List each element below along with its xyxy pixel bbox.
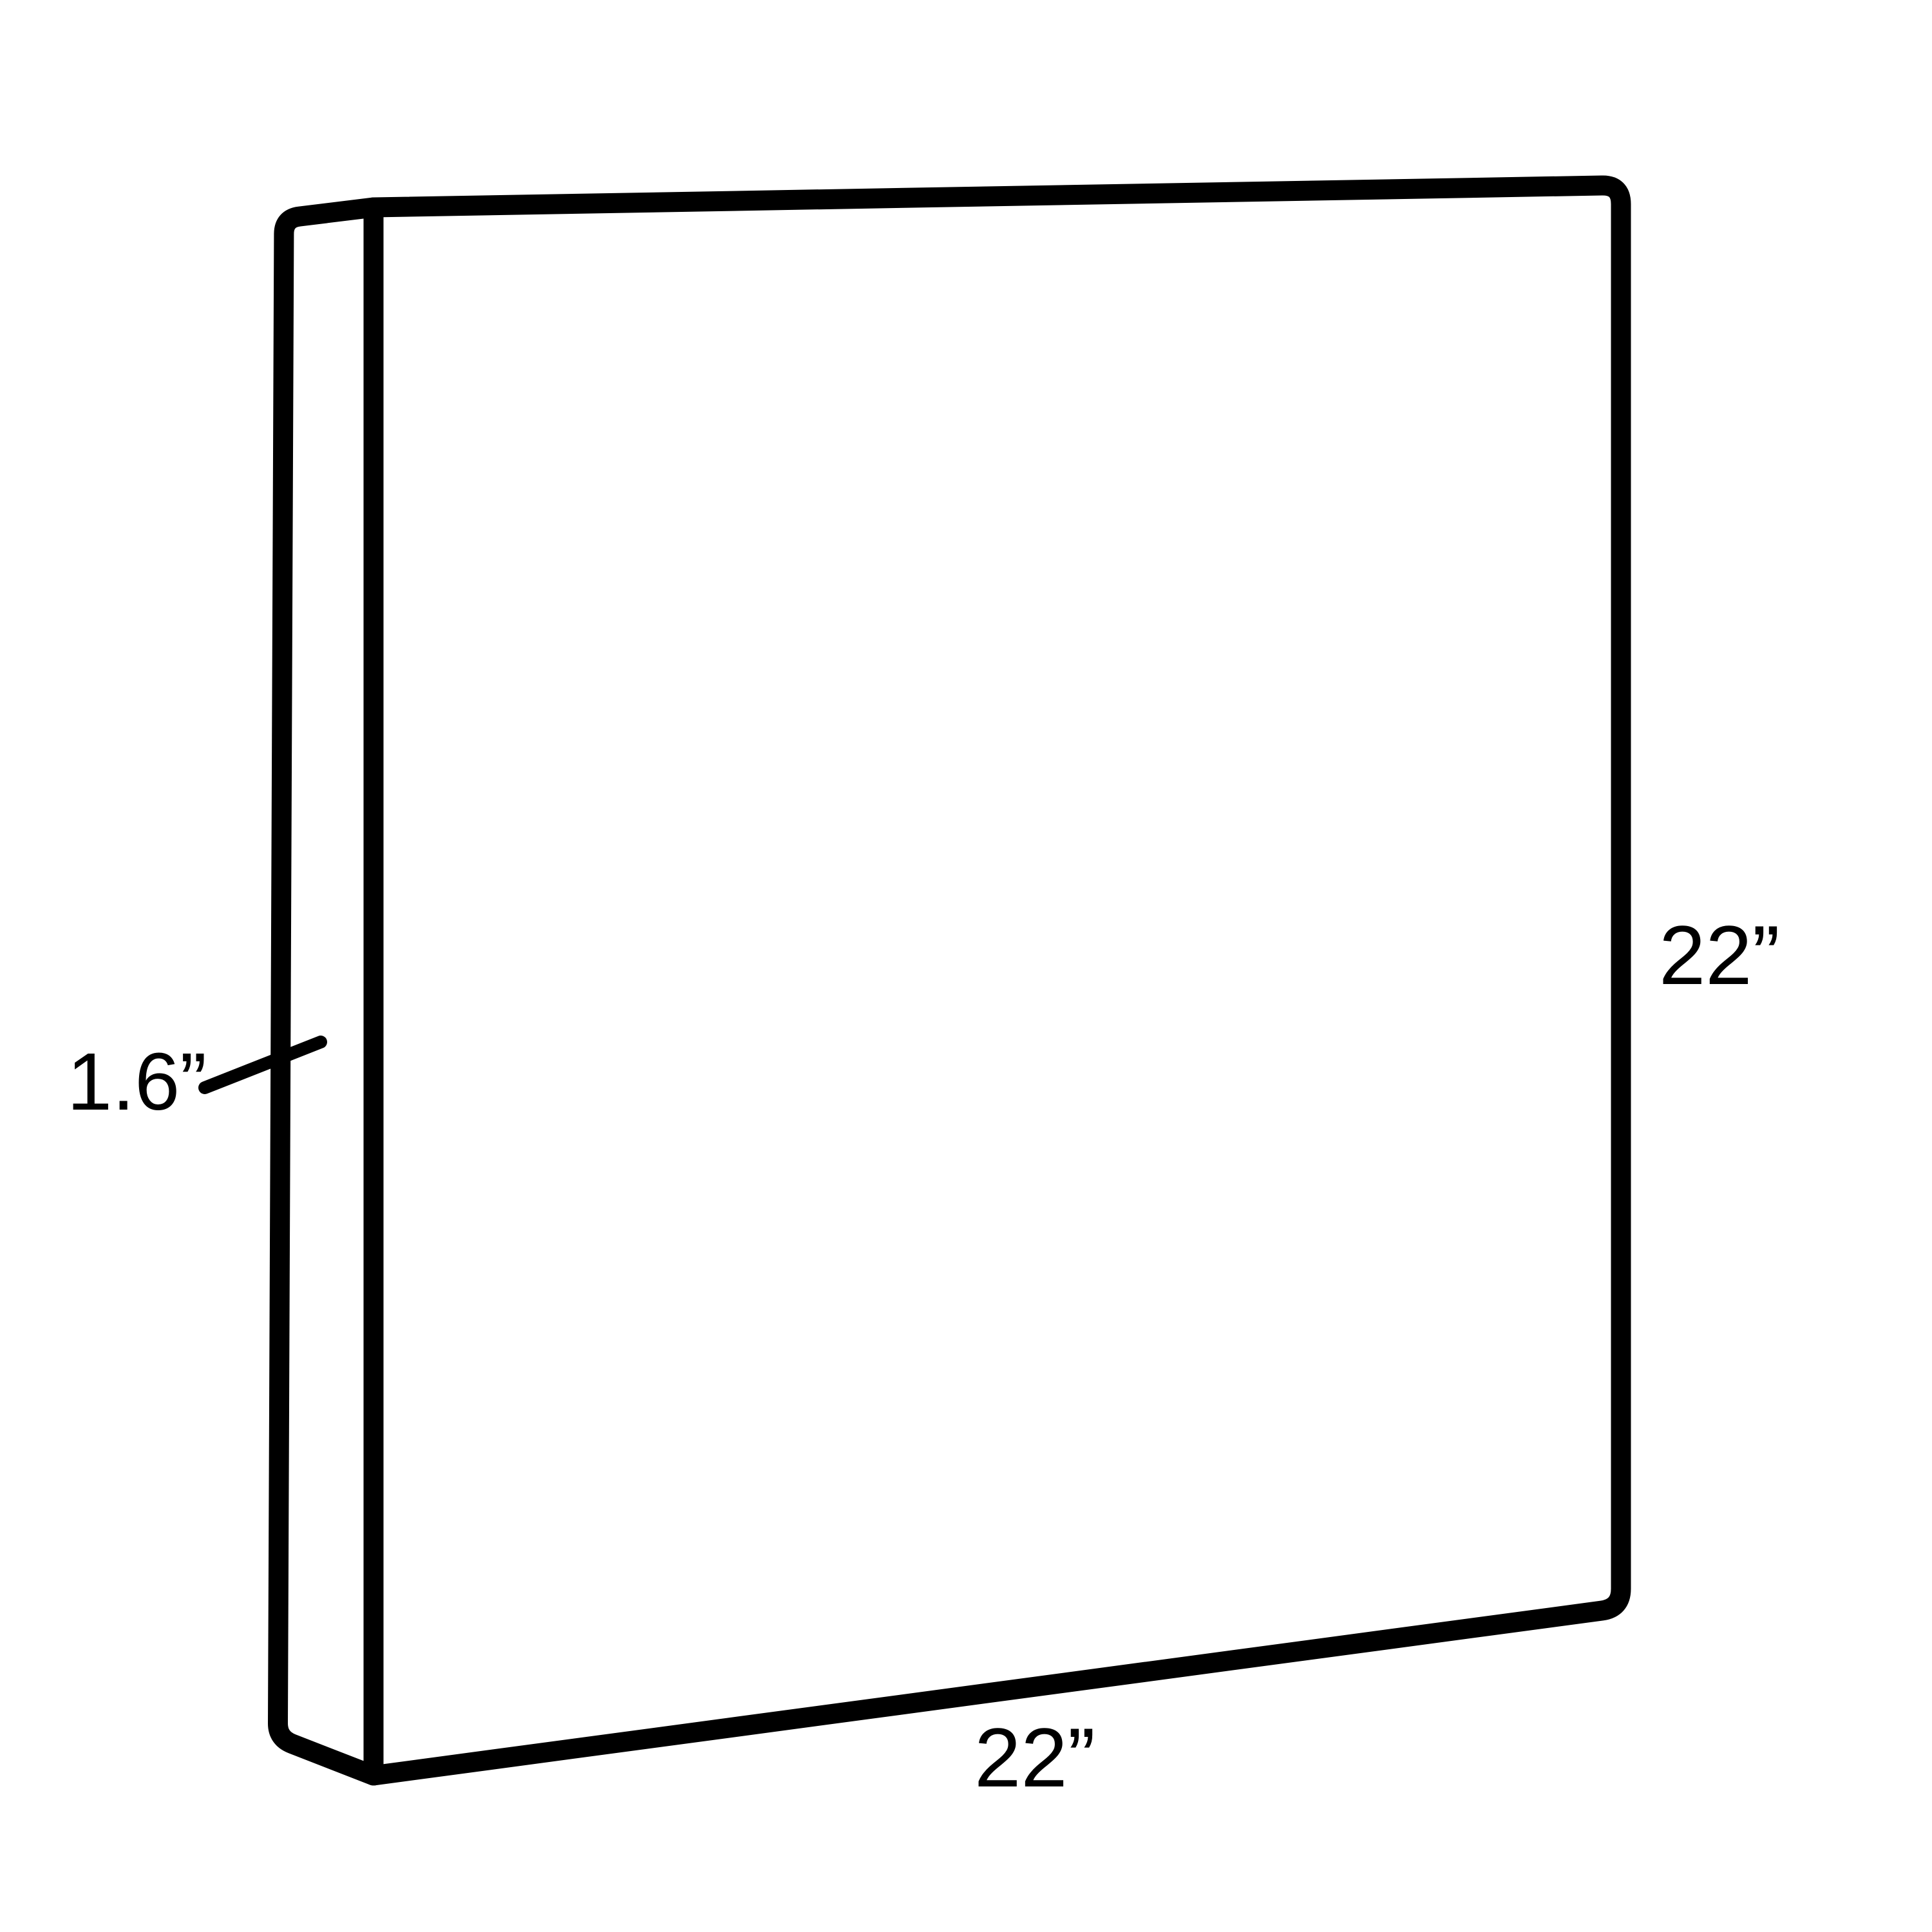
svg-text:22”: 22”: [974, 1710, 1095, 1804]
svg-text:1.6”: 1.6”: [67, 1036, 207, 1127]
svg-text:22”: 22”: [1659, 908, 1780, 1002]
